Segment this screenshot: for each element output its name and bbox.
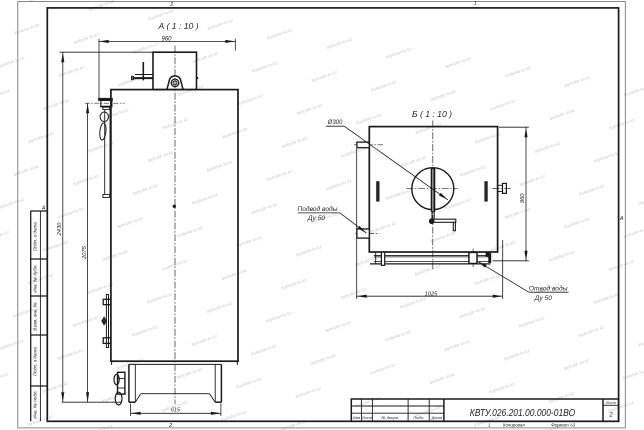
svg-text:teplodar-kv.kz: teplodar-kv.kz	[116, 357, 144, 371]
svg-text:teplodar-kv.kz: teplodar-kv.kz	[518, 315, 546, 329]
svg-text:Ø300: Ø300	[327, 120, 343, 126]
svg-text:teplodar-kv.kz: teplodar-kv.kz	[176, 225, 204, 239]
svg-text:teplodar-kv.kz: teplodar-kv.kz	[563, 357, 591, 371]
svg-text:teplodar-kv.kz: teplodar-kv.kz	[236, 234, 264, 248]
svg-text:teplodar-kv.kz: teplodar-kv.kz	[430, 88, 458, 102]
svg-text:teplodar-kv.kz: teplodar-kv.kz	[72, 173, 100, 187]
svg-text:teplodar-kv.kz: teplodar-kv.kz	[445, 55, 473, 69]
svg-text:teplodar-kv.kz: teplodar-kv.kz	[250, 343, 278, 357]
svg-text:teplodar-kv.kz: teplodar-kv.kz	[206, 300, 234, 314]
svg-text:Копировал: Копировал	[503, 422, 525, 427]
svg-text:teplodar-kv.kz: teplodar-kv.kz	[638, 192, 644, 206]
svg-text:teplodar-kv.kz: teplodar-kv.kz	[102, 248, 130, 262]
svg-text:teplodar-kv.kz: teplodar-kv.kz	[235, 376, 263, 390]
svg-text:teplodar-kv.kz: teplodar-kv.kz	[28, 130, 56, 144]
svg-text:teplodar-kv.kz: teplodar-kv.kz	[73, 31, 101, 45]
svg-text:teplodar-kv.kz: teplodar-kv.kz	[593, 150, 621, 164]
svg-text:teplodar-kv.kz: teplodar-kv.kz	[296, 102, 324, 116]
svg-text:teplodar-kv.kz: teplodar-kv.kz	[534, 140, 562, 154]
svg-text:Ду 50: Ду 50	[307, 215, 326, 222]
svg-text:teplodar-kv.kz: teplodar-kv.kz	[608, 117, 636, 131]
svg-text:teplodar-kv.kz: teplodar-kv.kz	[519, 173, 547, 187]
svg-text:teplodar-kv.kz: teplodar-kv.kz	[86, 423, 114, 430]
svg-text:teplodar-kv.kz: teplodar-kv.kz	[325, 178, 353, 192]
svg-text:teplodar-kv.kz: teplodar-kv.kz	[162, 116, 190, 130]
svg-text:teplodar-kv.kz: teplodar-kv.kz	[504, 65, 532, 79]
svg-text:2: 2	[168, 423, 172, 429]
svg-text:Изм: Изм	[353, 415, 361, 420]
svg-text:teplodar-kv.kz: teplodar-kv.kz	[414, 263, 442, 277]
svg-text:teplodar-kv.kz: teplodar-kv.kz	[400, 154, 428, 168]
svg-text:teplodar-kv.kz: teplodar-kv.kz	[147, 149, 175, 163]
svg-text:teplodar-kv.kz: teplodar-kv.kz	[429, 371, 457, 385]
svg-text:teplodar-kv.kz: teplodar-kv.kz	[504, 206, 532, 220]
svg-text:teplodar-kv.kz: teplodar-kv.kz	[13, 163, 41, 177]
svg-text:teplodar-kv.kz: teplodar-kv.kz	[415, 121, 443, 135]
svg-text:teplodar-kv.kz: teplodar-kv.kz	[265, 310, 293, 324]
svg-text:А: А	[619, 216, 624, 222]
svg-text:teplodar-kv.kz: teplodar-kv.kz	[429, 230, 457, 244]
svg-text:2: 2	[608, 412, 613, 419]
svg-text:teplodar-kv.kz: teplodar-kv.kz	[206, 159, 234, 173]
svg-text:960: 960	[161, 36, 172, 42]
svg-text:Взам. инв. №: Взам. инв. №	[33, 302, 38, 330]
svg-text:teplodar-kv.kz: teplodar-kv.kz	[593, 291, 621, 305]
svg-text:Лист: Лист	[605, 400, 617, 405]
svg-text:teplodar-kv.kz: teplodar-kv.kz	[42, 380, 70, 394]
svg-text:Инв. № дубл.: Инв. № дубл.	[33, 264, 38, 292]
svg-text:Ду 50: Ду 50	[534, 295, 553, 302]
svg-text:teplodar-kv.kz: teplodar-kv.kz	[191, 333, 219, 347]
svg-text:teplodar-kv.kz: teplodar-kv.kz	[370, 79, 398, 93]
svg-text:№ докум.: № докум.	[381, 415, 399, 420]
svg-text:teplodar-kv.kz: teplodar-kv.kz	[444, 338, 472, 352]
svg-text:teplodar-kv.kz: teplodar-kv.kz	[459, 164, 487, 178]
svg-text:teplodar-kv.kz: teplodar-kv.kz	[489, 98, 517, 112]
svg-text:teplodar-kv.kz: teplodar-kv.kz	[251, 201, 279, 215]
svg-text:teplodar-kv.kz: teplodar-kv.kz	[207, 17, 235, 31]
svg-text:teplodar-kv.kz: teplodar-kv.kz	[459, 305, 487, 319]
svg-text:2430: 2430	[57, 222, 63, 237]
svg-text:1: 1	[488, 422, 491, 427]
svg-text:А ( 1 : 10 ): А ( 1 : 10 )	[157, 21, 198, 31]
svg-text:teplodar-kv.kz: teplodar-kv.kz	[147, 8, 175, 22]
svg-text:teplodar-kv.kz: teplodar-kv.kz	[42, 239, 70, 253]
svg-text:teplodar-kv.kz: teplodar-kv.kz	[72, 314, 100, 328]
svg-text:Б ( 1 : 10 ): Б ( 1 : 10 )	[412, 109, 452, 119]
svg-text:Подвод воды: Подвод воды	[298, 205, 338, 213]
svg-text:Подп. и дата: Подп. и дата	[33, 222, 38, 251]
svg-text:2075: 2075	[82, 245, 88, 260]
svg-text:teplodar-kv.kz: teplodar-kv.kz	[0, 371, 10, 385]
svg-text:Подп. и дата: Подп. и дата	[33, 347, 38, 376]
svg-text:teplodar-kv.kz: teplodar-kv.kz	[0, 55, 26, 69]
svg-text:teplodar-kv.kz: teplodar-kv.kz	[191, 192, 219, 206]
svg-text:teplodar-kv.kz: teplodar-kv.kz	[370, 220, 398, 234]
svg-text:teplodar-kv.kz: teplodar-kv.kz	[385, 187, 413, 201]
svg-text:Дата: Дата	[431, 415, 443, 420]
svg-text:2: 2	[169, 2, 173, 8]
svg-text:teplodar-kv.kz: teplodar-kv.kz	[385, 46, 413, 60]
svg-text:teplodar-kv.kz: teplodar-kv.kz	[220, 409, 248, 423]
svg-text:Формат А3: Формат А3	[551, 422, 576, 427]
svg-text:teplodar-kv.kz: teplodar-kv.kz	[549, 107, 577, 121]
svg-text:teplodar-kv.kz: teplodar-kv.kz	[102, 107, 130, 121]
svg-text:А: А	[41, 206, 46, 212]
svg-text:teplodar-kv.kz: teplodar-kv.kz	[399, 296, 427, 310]
svg-text:teplodar-kv.kz: teplodar-kv.kz	[474, 272, 502, 286]
svg-text:teplodar-kv.kz: teplodar-kv.kz	[637, 334, 644, 348]
svg-text:teplodar-kv.kz: teplodar-kv.kz	[310, 352, 338, 366]
svg-text:teplodar-kv.kz: teplodar-kv.kz	[340, 286, 368, 300]
svg-text:teplodar-kv.kz: teplodar-kv.kz	[608, 258, 636, 272]
svg-text:teplodar-kv.kz: teplodar-kv.kz	[0, 229, 11, 243]
svg-text:Отвод воды: Отвод воды	[529, 284, 568, 292]
svg-text:teplodar-kv.kz: teplodar-kv.kz	[311, 69, 339, 83]
svg-text:teplodar-kv.kz: teplodar-kv.kz	[355, 112, 383, 126]
svg-text:teplodar-kv.kz: teplodar-kv.kz	[326, 36, 354, 50]
svg-text:teplodar-kv.kz: teplodar-kv.kz	[146, 291, 174, 305]
svg-text:teplodar-kv.kz: teplodar-kv.kz	[57, 206, 85, 220]
svg-text:1025: 1025	[425, 291, 438, 297]
svg-text:teplodar-kv.kz: teplodar-kv.kz	[131, 324, 159, 338]
svg-text:teplodar-kv.kz: teplodar-kv.kz	[251, 60, 279, 74]
svg-text:teplodar-kv.kz: teplodar-kv.kz	[578, 324, 606, 338]
svg-text:teplodar-kv.kz: teplodar-kv.kz	[548, 249, 576, 263]
svg-text:teplodar-kv.kz: teplodar-kv.kz	[280, 277, 308, 291]
svg-text:teplodar-kv.kz: teplodar-kv.kz	[0, 196, 26, 210]
svg-text:teplodar-kv.kz: teplodar-kv.kz	[0, 338, 25, 352]
svg-text:teplodar-kv.kz: teplodar-kv.kz	[266, 168, 294, 182]
svg-text:teplodar-kv.kz: teplodar-kv.kz	[488, 381, 516, 395]
svg-text:teplodar-kv.kz: teplodar-kv.kz	[221, 126, 249, 140]
svg-text:teplodar-kv.kz: teplodar-kv.kz	[176, 366, 204, 380]
svg-text:teplodar-kv.kz: teplodar-kv.kz	[0, 88, 11, 102]
svg-text:teplodar-kv.kz: teplodar-kv.kz	[57, 347, 85, 361]
svg-text:teplodar-kv.kz: teplodar-kv.kz	[58, 64, 86, 78]
svg-text:teplodar-kv.kz: teplodar-kv.kz	[369, 362, 397, 376]
svg-text:teplodar-kv.kz: teplodar-kv.kz	[221, 267, 249, 281]
svg-text:teplodar-kv.kz: teplodar-kv.kz	[384, 329, 412, 343]
svg-text:1: 1	[474, 1, 477, 7]
svg-text:teplodar-kv.kz: teplodar-kv.kz	[623, 225, 644, 239]
svg-text:teplodar-kv.kz: teplodar-kv.kz	[266, 27, 294, 41]
svg-text:teplodar-kv.kz: teplodar-kv.kz	[548, 390, 576, 404]
svg-text:Подп.: Подп.	[413, 415, 424, 420]
svg-text:teplodar-kv.kz: teplodar-kv.kz	[281, 135, 309, 149]
svg-text:Лист: Лист	[361, 415, 373, 420]
svg-text:960: 960	[520, 193, 526, 203]
svg-text:teplodar-kv.kz: teplodar-kv.kz	[503, 348, 531, 362]
svg-text:teplodar-kv.kz: teplodar-kv.kz	[563, 216, 591, 230]
svg-text:teplodar-kv.kz: teplodar-kv.kz	[295, 385, 323, 399]
svg-text:Инв. № подл.: Инв. № подл.	[33, 390, 38, 419]
svg-text:teplodar-kv.kz: teplodar-kv.kz	[564, 74, 592, 88]
svg-text:615: 615	[171, 407, 181, 413]
svg-text:teplodar-kv.kz: teplodar-kv.kz	[325, 319, 353, 333]
svg-text:teplodar-kv.kz: teplodar-kv.kz	[132, 182, 160, 196]
svg-text:teplodar-kv.kz: teplodar-kv.kz	[623, 84, 644, 98]
svg-text:teplodar-kv.kz: teplodar-kv.kz	[578, 183, 606, 197]
svg-text:teplodar-kv.kz: teplodar-kv.kz	[27, 272, 55, 286]
svg-text:teplodar-kv.kz: teplodar-kv.kz	[295, 244, 323, 258]
svg-text:teplodar-kv.kz: teplodar-kv.kz	[117, 215, 145, 229]
svg-text:teplodar-kv.kz: teplodar-kv.kz	[236, 93, 264, 107]
svg-text:КВТУ.026.201.00.000-01ВО: КВТУ.026.201.00.000-01ВО	[470, 407, 576, 419]
